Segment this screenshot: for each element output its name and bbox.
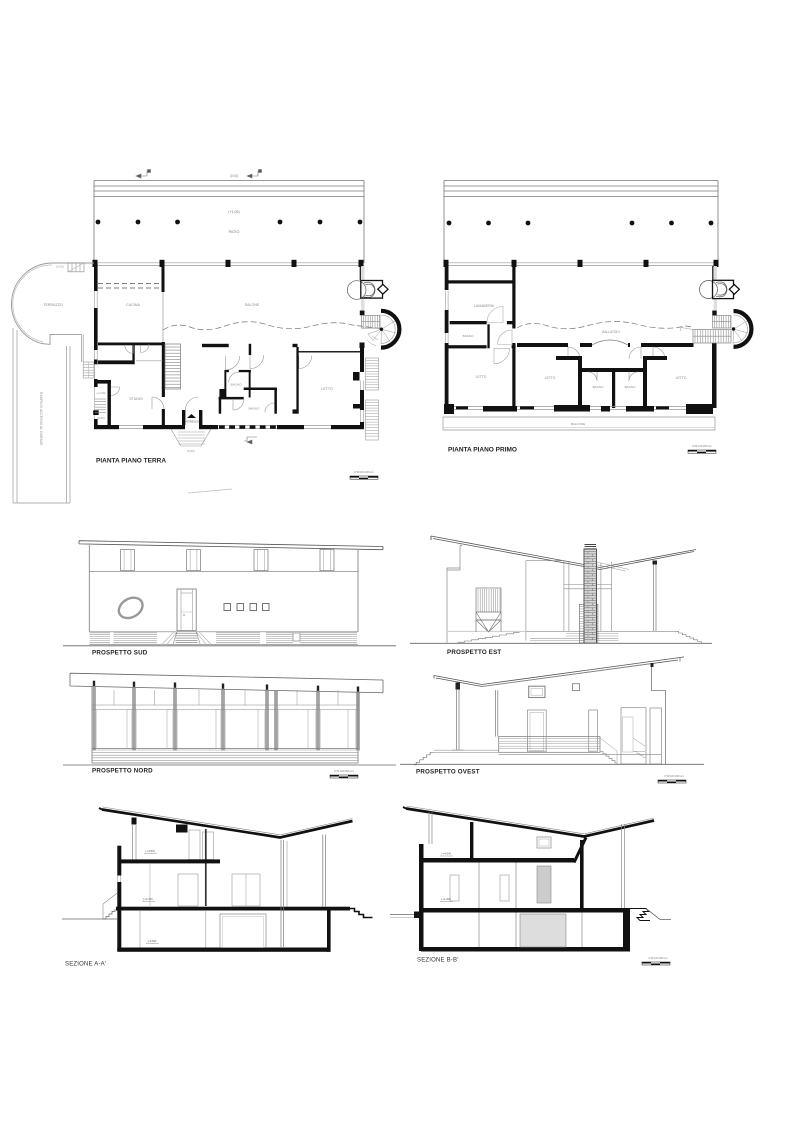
svg-text:LETTO: LETTO xyxy=(321,387,333,391)
svg-text:STUDIO: STUDIO xyxy=(129,397,143,401)
svg-text:0 50 100 200 cm: 0 50 100 200 cm xyxy=(354,470,373,474)
svg-text:(+4.04): (+4.04) xyxy=(441,852,451,856)
svg-text:(+1.00): (+1.00) xyxy=(143,897,153,901)
svg-text:(0.00): (0.00) xyxy=(56,265,64,269)
svg-text:SALONE: SALONE xyxy=(245,303,260,307)
svg-text:0 50 100 200 cm: 0 50 100 200 cm xyxy=(692,444,711,448)
svg-text:PROSPETTO OVEST: PROSPETTO OVEST xyxy=(416,769,480,776)
svg-text:PROSPETTO EST: PROSPETTO EST xyxy=(447,649,501,656)
svg-text:PIANTA PIANO PRIMO: PIANTA PIANO PRIMO xyxy=(448,447,517,454)
svg-text:BALCONE: BALCONE xyxy=(571,422,585,426)
svg-text:BAGNO: BAGNO xyxy=(249,407,261,411)
svg-text:BAGNO: BAGNO xyxy=(231,383,243,387)
svg-text:LETTO: LETTO xyxy=(545,376,556,380)
svg-text:LETTO: LETTO xyxy=(676,376,687,380)
svg-text:(0.00): (0.00) xyxy=(187,449,194,453)
svg-text:TERRAZZO: TERRAZZO xyxy=(43,303,63,307)
svg-text:PROSPETTO SUD: PROSPETTO SUD xyxy=(92,650,148,657)
svg-text:INGRESSO: INGRESSO xyxy=(185,420,199,424)
svg-text:BALLATOIO: BALLATOIO xyxy=(602,330,620,334)
svg-text:PROSPETTO NORD: PROSPETTO NORD xyxy=(92,768,153,775)
svg-text:(0.00): (0.00) xyxy=(97,416,104,420)
svg-text:SEZIONE A-A': SEZIONE A-A' xyxy=(65,962,106,968)
svg-text:(+4.50): (+4.50) xyxy=(145,849,155,853)
svg-text:(0.00): (0.00) xyxy=(230,174,238,178)
svg-text:(-2.50): (-2.50) xyxy=(148,939,157,943)
svg-text:LETTO: LETTO xyxy=(476,375,487,379)
svg-text:(+1.00): (+1.00) xyxy=(97,391,106,395)
svg-text:0 50 100 200 cm: 0 50 100 200 cm xyxy=(648,956,667,960)
svg-text:0 50 100 200 cm: 0 50 100 200 cm xyxy=(664,774,683,778)
svg-text:PATIO: PATIO xyxy=(229,230,240,234)
svg-text:BAGNO: BAGNO xyxy=(593,385,605,389)
svg-text:PIANTA PIANO TERRA: PIANTA PIANO TERRA xyxy=(96,458,166,465)
svg-text:CUCINA: CUCINA xyxy=(126,303,140,307)
svg-text:BAGNO: BAGNO xyxy=(625,385,637,389)
svg-text:(+1.05): (+1.05) xyxy=(228,210,240,214)
svg-text:0 50 100 200 cm: 0 50 100 200 cm xyxy=(334,769,353,773)
svg-text:RAMPA DI ACCESSO AL GARAGE: RAMPA DI ACCESSO AL GARAGE xyxy=(39,392,43,446)
svg-text:LAVANDERIA: LAVANDERIA xyxy=(474,304,495,308)
svg-text:SEZIONE B-B': SEZIONE B-B' xyxy=(417,958,459,964)
svg-text:(+1.00): (+1.00) xyxy=(441,897,451,901)
svg-text:BAGNO: BAGNO xyxy=(463,334,475,338)
